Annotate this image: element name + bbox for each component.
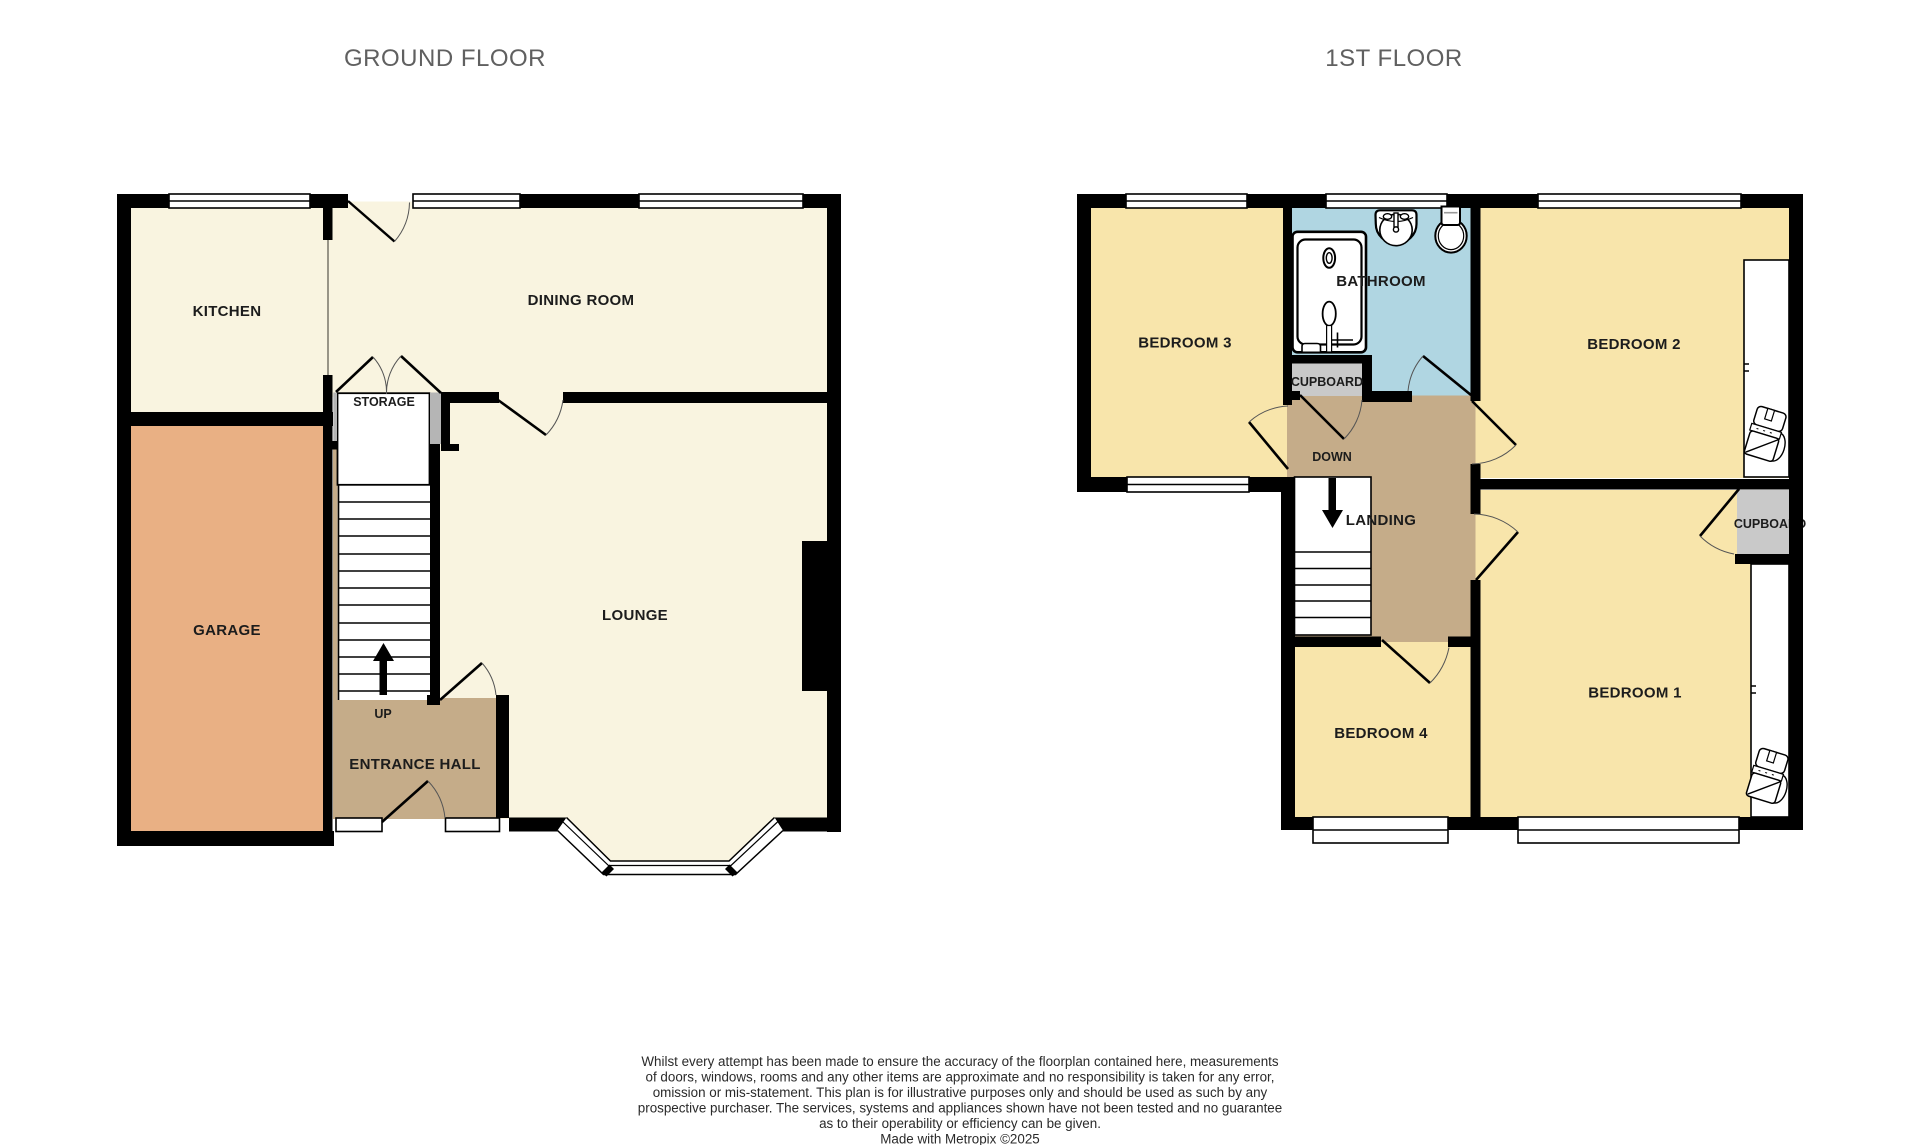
svg-text:as to their operability or eff: as to their operability or efficiency ca… [819, 1116, 1101, 1131]
svg-text:Made with Metropix ©2025: Made with Metropix ©2025 [880, 1132, 1039, 1145]
svg-text:CUPBOARD: CUPBOARD [1291, 375, 1363, 389]
svg-text:STORAGE: STORAGE [353, 395, 415, 409]
svg-text:LANDING: LANDING [1346, 512, 1416, 529]
svg-text:UP: UP [374, 707, 391, 721]
svg-text:LOUNGE: LOUNGE [602, 607, 668, 624]
svg-text:BEDROOM 4: BEDROOM 4 [1334, 725, 1428, 742]
svg-text:1ST FLOOR: 1ST FLOOR [1325, 45, 1462, 72]
svg-text:BEDROOM 1: BEDROOM 1 [1588, 685, 1682, 702]
svg-text:BEDROOM 2: BEDROOM 2 [1587, 336, 1681, 353]
svg-text:omission or mis-statement. Thi: omission or mis-statement. This plan is … [653, 1085, 1268, 1100]
svg-text:KITCHEN: KITCHEN [193, 303, 262, 320]
svg-text:GARAGE: GARAGE [193, 622, 261, 639]
svg-text:BATHROOM: BATHROOM [1336, 273, 1426, 290]
svg-text:Whilst every attempt has been: Whilst every attempt has been made to en… [641, 1054, 1278, 1069]
svg-text:ENTRANCE HALL: ENTRANCE HALL [349, 756, 480, 773]
svg-text:of doors, windows, rooms and a: of doors, windows, rooms and any other i… [646, 1070, 1275, 1085]
svg-text:prospective purchaser. The ser: prospective purchaser. The services, sys… [638, 1101, 1282, 1116]
svg-text:DOWN: DOWN [1312, 450, 1352, 464]
svg-text:BEDROOM 3: BEDROOM 3 [1138, 335, 1232, 352]
svg-text:DINING ROOM: DINING ROOM [528, 292, 635, 309]
svg-text:GROUND FLOOR: GROUND FLOOR [344, 45, 546, 72]
